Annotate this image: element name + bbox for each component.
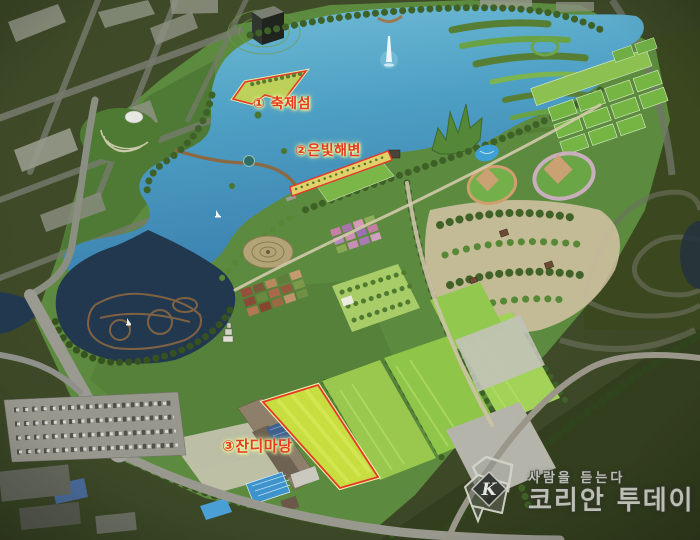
watermark-brand: 코리안 투데이 (528, 488, 695, 514)
korean-today-logo-icon: K (452, 453, 524, 527)
logo-monogram: K (481, 480, 498, 500)
annotation-label-grass-yard: ③잔디마당 (222, 435, 292, 456)
watermark-logo: K 사람을 듣는다 코리안 투데이 (452, 453, 700, 527)
annotation-label-silver-beach: ②은빛해변 (295, 140, 361, 160)
watermark-slogan: 사람을 듣는다 (528, 467, 695, 486)
park-masterplan-screenshot: ① 축제섬 ②은빛해변 ③잔디마당 K 사람을 듣는다 코리안 투데이 (0, 0, 700, 540)
annotation-label-festival-island: ① 축제섬 (253, 93, 311, 113)
